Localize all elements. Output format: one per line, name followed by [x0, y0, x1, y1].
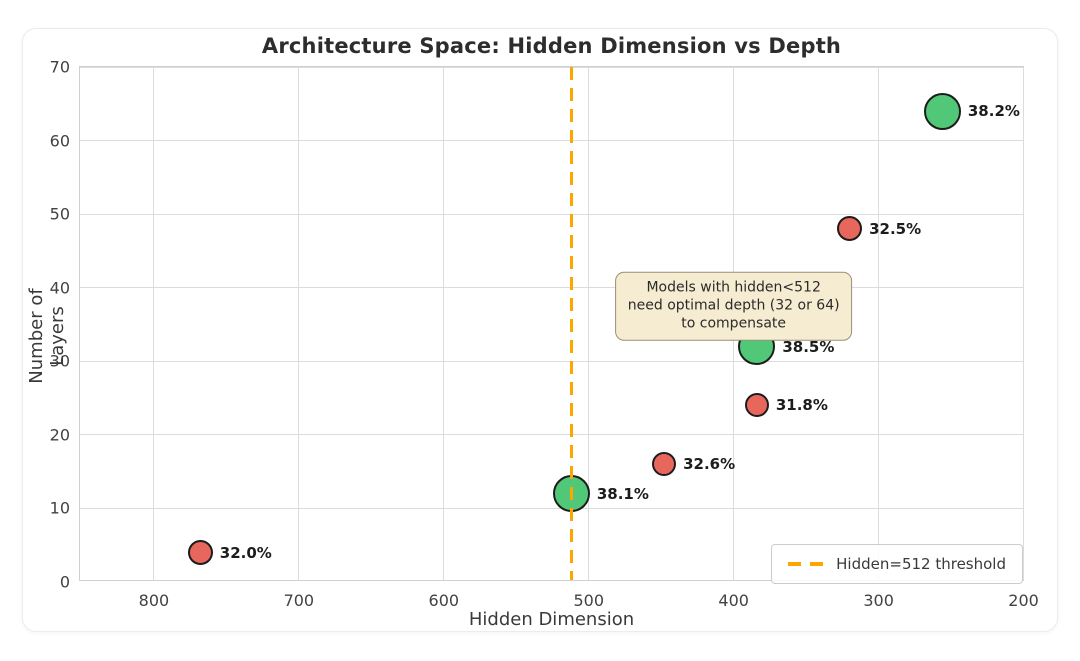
threshold-line [570, 67, 573, 580]
legend-dashed-line-swatch [788, 562, 824, 565]
x-gridline [1023, 67, 1024, 580]
y-tick-label: 0 [24, 573, 70, 592]
y-tick-label: 20 [24, 425, 70, 444]
data-point-value-label: 32.6% [683, 455, 735, 473]
y-gridline [80, 434, 1023, 435]
legend: Hidden=512 threshold [771, 544, 1023, 584]
data-point-448x16 [652, 452, 676, 476]
y-gridline [80, 67, 1023, 68]
x-tick-label: 800 [139, 591, 170, 610]
y-gridline [80, 287, 1023, 288]
y-gridline [80, 508, 1023, 509]
y-gridline [80, 140, 1023, 141]
figure-card: Architecture Space: Hidden Dimension vs … [22, 28, 1058, 632]
data-point-value-label: 38.2% [968, 102, 1020, 120]
x-gridline [878, 67, 879, 580]
y-tick-label: 10 [24, 499, 70, 518]
y-tick-label: 60 [24, 131, 70, 150]
x-gridline [153, 67, 154, 580]
x-tick-label: 400 [718, 591, 749, 610]
data-point-value-label: 31.8% [776, 396, 828, 414]
x-gridline [443, 67, 444, 580]
x-gridline [298, 67, 299, 580]
x-tick-label: 500 [573, 591, 604, 610]
data-point-value-label: 32.5% [869, 220, 921, 238]
annotation-callout: Models with hidden<512 need optimal dept… [615, 272, 853, 341]
x-tick-label: 200 [1008, 591, 1039, 610]
data-point-value-label: 38.1% [597, 485, 649, 503]
data-point-384x24 [745, 393, 769, 417]
chart-title: Architecture Space: Hidden Dimension vs … [79, 34, 1024, 58]
x-tick-label: 600 [429, 591, 460, 610]
x-tick-label: 700 [284, 591, 315, 610]
data-point-320x48 [837, 216, 862, 241]
x-axis-label: Hidden Dimension [79, 609, 1024, 630]
y-gridline [80, 214, 1023, 215]
data-point-256x64 [924, 93, 961, 130]
legend-entry-label: Hidden=512 threshold [836, 555, 1006, 573]
y-gridline [80, 361, 1023, 362]
y-axis-label: Number of Layers [26, 256, 68, 416]
plot-area: Models with hidden<512 need optimal dept… [79, 66, 1024, 581]
y-tick-label: 50 [24, 205, 70, 224]
y-tick-label: 70 [24, 58, 70, 77]
x-tick-label: 300 [863, 591, 894, 610]
data-point-value-label: 32.0% [220, 544, 272, 562]
x-gridline [588, 67, 589, 580]
data-point-768x4 [188, 540, 213, 565]
